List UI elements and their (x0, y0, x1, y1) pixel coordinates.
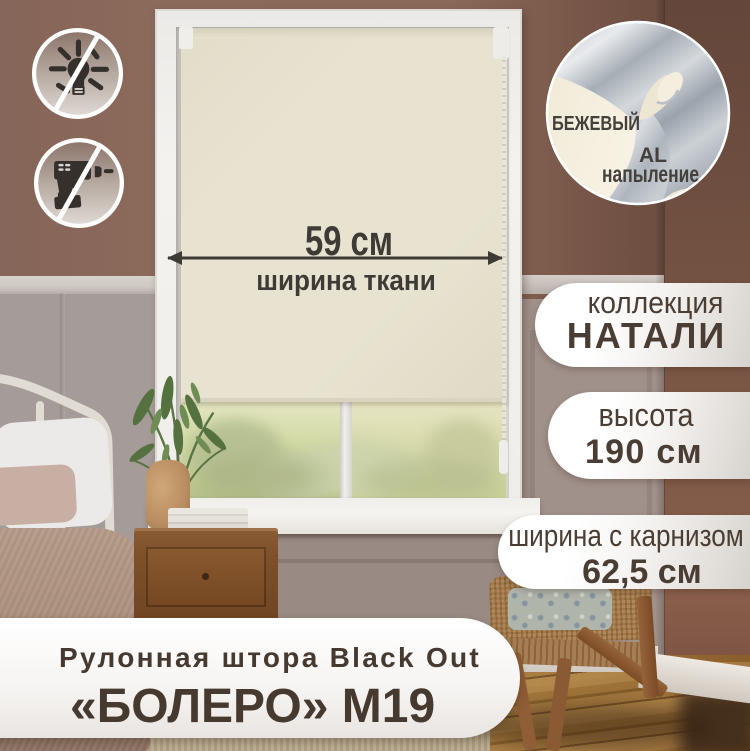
svg-text:БЕЖЕВЫЙ: БЕЖЕВЫЙ (552, 111, 640, 135)
svg-text:напыление: напыление (602, 161, 699, 187)
